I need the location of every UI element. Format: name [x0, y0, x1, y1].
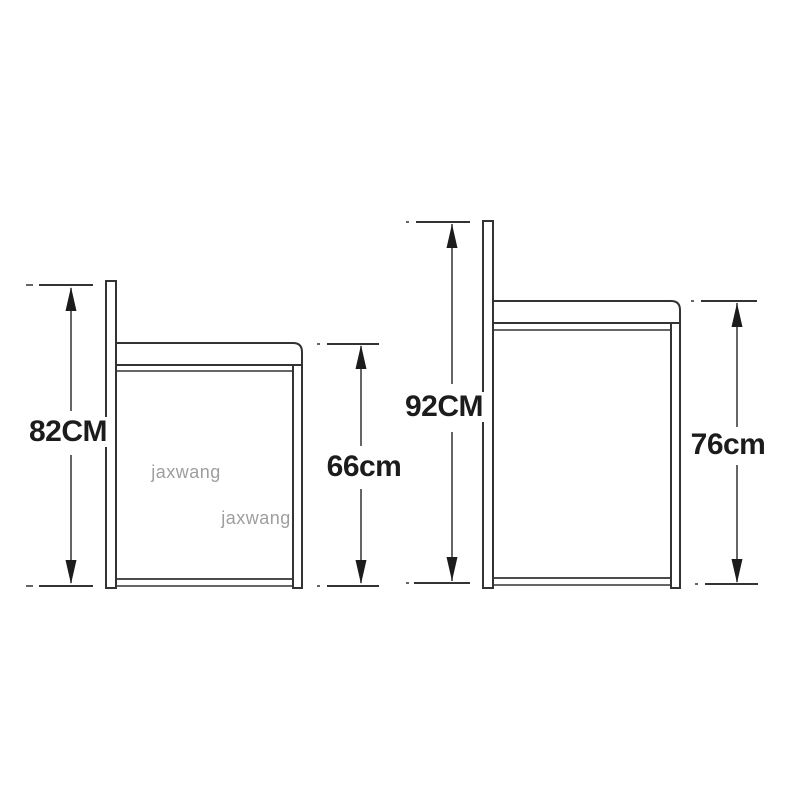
- arrowhead-up-icon: [447, 224, 458, 248]
- dimension-diagram: 82CM 66cm 92CM 76cm jaxwang jaxwang: [0, 0, 800, 800]
- left-overall-height-label: 82CM: [27, 417, 109, 447]
- left-stool-drawing: [106, 281, 302, 588]
- right-seat-cushion: [493, 301, 680, 323]
- diagram-canvas: [0, 0, 800, 800]
- left-seat-height-label: 66cm: [325, 452, 404, 482]
- arrowhead-down-icon: [66, 560, 77, 584]
- arrowhead-up-icon: [732, 303, 743, 327]
- right-stool-drawing: [483, 221, 680, 588]
- right-seat-height-label: 76cm: [689, 430, 768, 460]
- right-frame-inner: [493, 330, 671, 578]
- left-right-leg: [293, 365, 302, 588]
- right-bottom-stretcher: [493, 578, 671, 585]
- right-right-leg: [671, 323, 680, 588]
- arrowhead-up-icon: [356, 345, 367, 369]
- left-bottom-stretcher: [116, 579, 293, 586]
- arrowhead-down-icon: [356, 560, 367, 584]
- arrowhead-down-icon: [732, 559, 743, 583]
- left-seat-cushion: [116, 343, 302, 365]
- watermark-text: jaxwang: [221, 509, 291, 527]
- right-overall-height-label: 92CM: [403, 392, 485, 422]
- arrowhead-up-icon: [66, 287, 77, 311]
- arrowhead-down-icon: [447, 557, 458, 581]
- watermark-text: jaxwang: [151, 463, 221, 481]
